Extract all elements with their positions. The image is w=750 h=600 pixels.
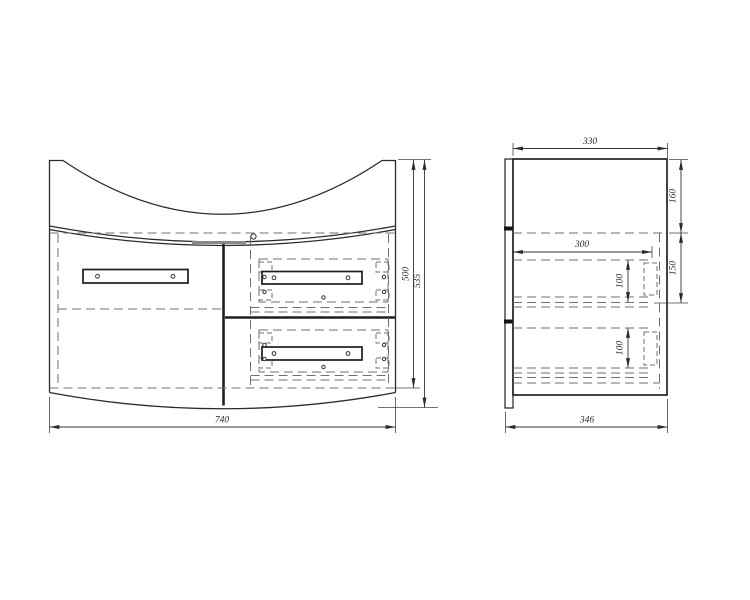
top-drawer-slide-bracket xyxy=(259,262,272,272)
dim-label-carcass-height: 500 xyxy=(402,267,412,282)
bottom-drawer-handle-screw xyxy=(346,352,350,356)
front-left-edge xyxy=(50,161,64,393)
top-drawer xyxy=(251,259,391,312)
apron-screw-hole xyxy=(251,234,256,239)
side-view: 330 160 150 300 100 100 346 xyxy=(504,137,688,433)
top-drawer-screw xyxy=(263,275,266,278)
dim-label-top-depth: 330 xyxy=(582,137,598,147)
dim-label-overall-height: 535 xyxy=(413,274,423,289)
top-drawer-screw xyxy=(382,275,385,278)
bottom-drawer-screw xyxy=(382,357,385,360)
drawing-svg: 740 500 535 xyxy=(0,0,750,600)
top-drawer-screw xyxy=(322,296,325,299)
top-drawer-slide-bracket xyxy=(376,262,389,272)
top-drawer-handle-screw xyxy=(272,276,276,280)
side-front-edge-strip xyxy=(505,159,513,408)
door-panel xyxy=(83,270,188,284)
bottom-drawer-screw xyxy=(263,357,266,360)
side-outline xyxy=(504,159,667,408)
front-dimensions: 740 500 535 xyxy=(50,160,439,434)
dim-label-width: 740 xyxy=(215,416,230,426)
top-drawer-screw xyxy=(263,290,266,293)
top-drawer-handle-screw xyxy=(346,276,350,280)
dim-label-drawer-section: 150 xyxy=(669,261,679,276)
apron-curve-upper xyxy=(50,226,396,242)
top-drawer-screw xyxy=(382,290,385,293)
sink-top-curve xyxy=(63,161,382,215)
dim-label-top-drawer-height: 100 xyxy=(616,274,626,289)
bottom-drawer xyxy=(251,330,391,380)
front-view: 740 500 535 xyxy=(50,160,439,434)
bottom-drawer-screw xyxy=(322,365,325,368)
bottom-drawer-slide-bracket xyxy=(259,333,272,343)
bottom-drawer-slide-bracket xyxy=(376,333,389,343)
dim-label-bottom-depth: 346 xyxy=(579,416,595,426)
bottom-drawer-handle-screw xyxy=(272,352,276,356)
bottom-drawer-screw xyxy=(382,343,385,346)
door-handle-screw-right xyxy=(171,274,175,278)
dim-label-bottom-drawer-height: 100 xyxy=(616,341,626,356)
technical-drawing-canvas: 740 500 535 xyxy=(0,0,750,600)
dim-label-upper-section: 160 xyxy=(669,189,679,204)
door-handle-screw-left xyxy=(96,274,100,278)
bottom-drawer-screw xyxy=(263,343,266,346)
dim-label-slide-length: 300 xyxy=(574,240,590,250)
